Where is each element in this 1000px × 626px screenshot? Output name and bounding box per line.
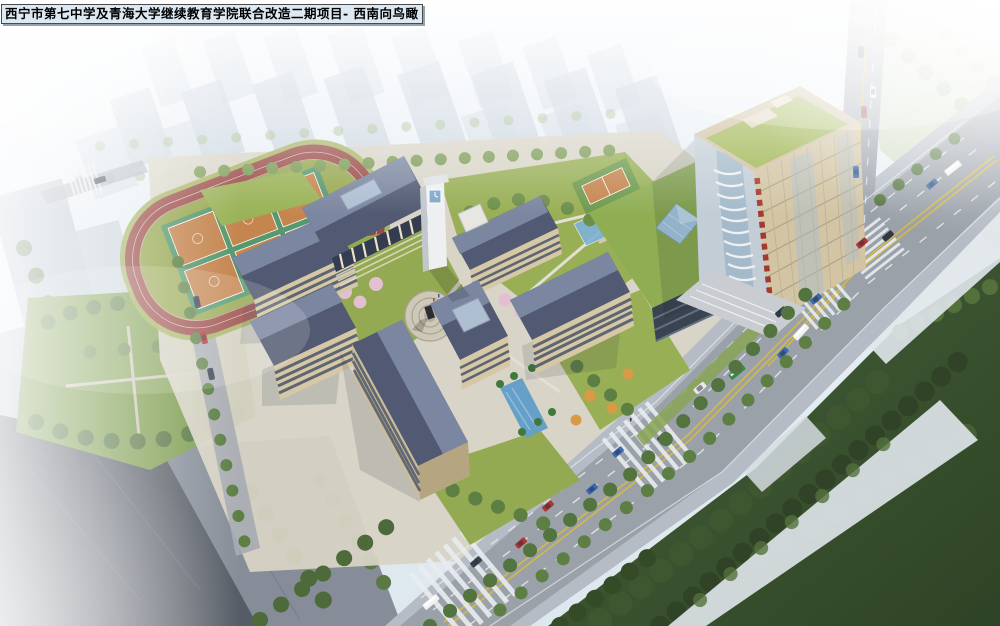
car	[853, 166, 859, 178]
rendering-canvas	[0, 0, 1000, 626]
car	[858, 46, 864, 58]
car	[870, 86, 876, 98]
car	[861, 106, 867, 118]
caption-text: 西宁市第七中学及青海大学继续教育学院联合改造二期项目- 西南向鸟瞰	[5, 6, 419, 21]
caption-box: 西宁市第七中学及青海大学继续教育学院联合改造二期项目- 西南向鸟瞰	[1, 4, 423, 24]
rendering-stage: 西宁市第七中学及青海大学继续教育学院联合改造二期项目- 西南向鸟瞰	[0, 0, 1000, 626]
